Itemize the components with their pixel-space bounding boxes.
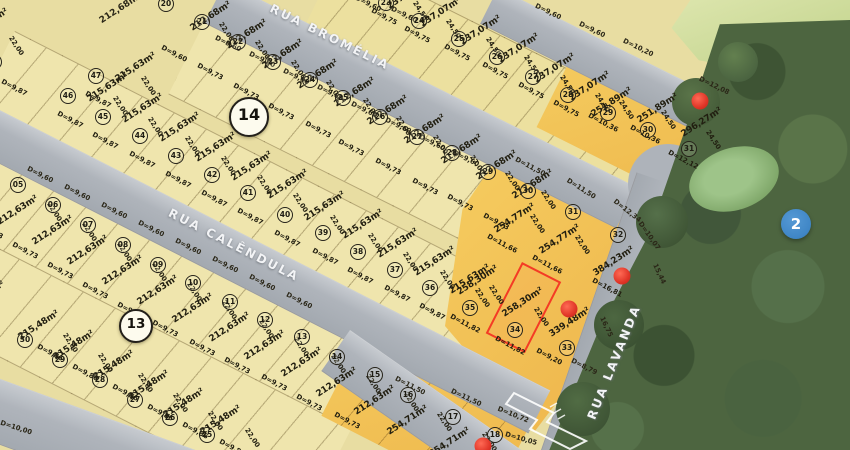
block-marker-14: 14 (229, 97, 269, 137)
lot-number[interactable]: 33 (559, 340, 575, 356)
lot-number[interactable]: 38 (350, 244, 366, 260)
lot-number[interactable]: 11 (222, 294, 238, 310)
lot-number[interactable]: 13 (294, 329, 310, 345)
lot-number[interactable]: 32 (610, 227, 626, 243)
sold-marker[interactable] (475, 438, 492, 450)
lot-number[interactable]: 07 (80, 217, 96, 233)
lot-number[interactable]: 26 (372, 109, 388, 125)
lot-number[interactable]: 15 (367, 367, 383, 383)
sold-marker[interactable] (614, 268, 631, 285)
lot-number[interactable]: 08 (115, 237, 131, 253)
lot-number[interactable]: 30 (520, 183, 536, 199)
lot-number[interactable]: 46 (60, 88, 76, 104)
lot-number[interactable]: 28 (444, 145, 460, 161)
lot-number[interactable]: 29 (480, 164, 496, 180)
lot-number[interactable]: 31 (565, 204, 581, 220)
lot-number[interactable]: 16 (400, 387, 416, 403)
lot-number[interactable]: 43 (168, 148, 184, 164)
lot-number[interactable]: 47 (88, 68, 104, 84)
lot-number[interactable]: 06 (45, 197, 61, 213)
sold-marker[interactable] (561, 301, 578, 318)
lot-number[interactable]: 27 (409, 129, 425, 145)
lot-number[interactable]: 44 (132, 128, 148, 144)
lot-number[interactable]: 21 (194, 14, 210, 30)
lot-number[interactable]: 24 (302, 72, 318, 88)
sold-marker[interactable] (692, 93, 709, 110)
lot-number[interactable]: 37 (387, 262, 403, 278)
lot-number[interactable]: 22 (230, 34, 246, 50)
phase-2-marker[interactable]: 2 (781, 209, 811, 239)
lot-number[interactable]: 25 (335, 90, 351, 106)
lot-number[interactable]: 45 (95, 109, 111, 125)
lot-number[interactable]: 35 (462, 300, 478, 316)
lot-number[interactable]: 10 (185, 275, 201, 291)
lot-number[interactable]: 41 (240, 185, 256, 201)
lot-number[interactable]: 34 (507, 322, 523, 338)
lot-number[interactable]: 40 (277, 207, 293, 223)
lot-number[interactable]: 17 (445, 409, 461, 425)
lot-number[interactable]: 14 (329, 349, 345, 365)
lot-number[interactable]: 23 (265, 54, 281, 70)
lot-number[interactable]: 39 (315, 225, 331, 241)
block-marker-13: 13 (119, 309, 153, 343)
lot-number[interactable]: 36 (422, 280, 438, 296)
lot-number[interactable]: 05 (10, 177, 26, 193)
site-plan-map: RUA BROMÉLIA RUA CALÊNDULA RUA LAVANDA D… (0, 0, 850, 450)
lot-number[interactable]: 42 (204, 167, 220, 183)
lot-number[interactable]: 12 (257, 312, 273, 328)
lot-number[interactable]: 09 (150, 257, 166, 273)
entrance-arrow-icon (500, 373, 610, 450)
